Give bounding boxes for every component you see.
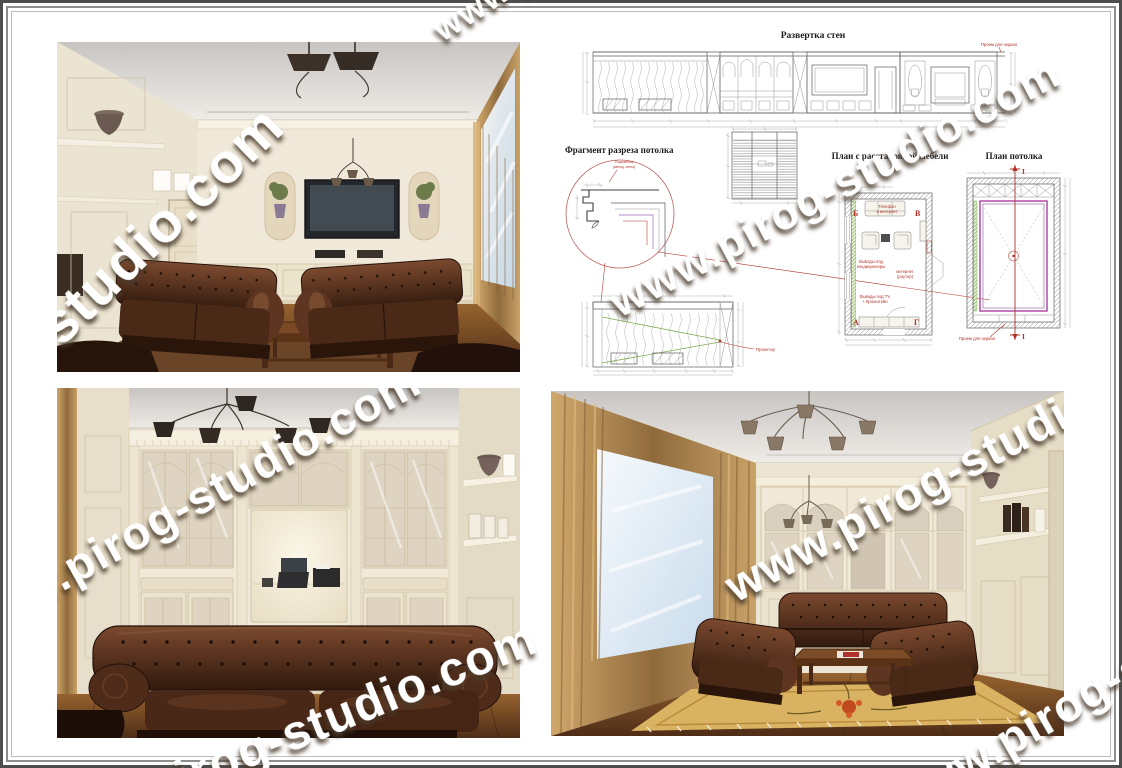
watermark: www.pirog-studio.com xyxy=(601,48,1069,328)
watermark: www.pirog-studio.com xyxy=(426,0,779,49)
telephone xyxy=(262,578,273,587)
label-phone-internet: Телефон и интернет xyxy=(876,204,897,214)
tv-symbol xyxy=(881,234,890,242)
furniture-plan: Телефон и интернет Выводы под кондиционе… xyxy=(837,185,943,345)
svg-text:и интернет: и интернет xyxy=(876,209,897,214)
svg-text:Проектор: Проектор xyxy=(756,347,775,352)
ottoman xyxy=(57,710,125,738)
magazine xyxy=(843,652,859,657)
ceiling-detail-circle: Подсветка (светод. лента) xyxy=(566,160,674,268)
label-router: интернет (роутер) xyxy=(896,269,914,279)
svg-text:кондиционеры: кондиционеры xyxy=(857,264,885,269)
door-jamb xyxy=(1049,451,1064,691)
corner-letter-v: В xyxy=(915,209,921,218)
corner-letter-b: Б xyxy=(853,209,858,218)
svg-text:+ Кронштейн: + Кронштейн xyxy=(862,299,888,304)
svg-text:Подсветка: Подсветка xyxy=(615,160,634,164)
svg-text:(роутер): (роутер) xyxy=(897,274,914,279)
label-ac-outlets: Выводы под кондиционеры xyxy=(857,259,885,269)
picture-frame xyxy=(1035,509,1045,532)
render-living-room-wide: www.pirog-studio.com xyxy=(551,320,1122,736)
sheet-canvas: www.pirog-studio.com xyxy=(0,0,1122,768)
svg-text:Проем для зеркал: Проем для зеркал xyxy=(981,42,1018,47)
printer xyxy=(313,568,340,587)
wall-section-drawing: Проектор xyxy=(582,294,775,375)
ceiling-plan: I I Проем для зеркал xyxy=(959,165,1070,341)
design-presentation-sheet: www.pirog-studio.com xyxy=(0,0,1122,768)
corner-letter-a: А xyxy=(853,318,859,327)
laptop xyxy=(277,572,309,588)
section-mark-top: I xyxy=(1022,167,1025,176)
section-mark-bottom: I xyxy=(1022,332,1025,341)
title-ceiling-plan: План потолка xyxy=(986,151,1043,161)
corner-letter-g: Г xyxy=(914,318,919,327)
label-backlight: Подсветка (светод. лента) xyxy=(609,160,635,182)
title-wall-elevations: Развертка стен xyxy=(781,31,846,41)
svg-text:(светод. лента): (светод. лента) xyxy=(613,165,635,169)
label-tv-outlets: Выводы под TV + Кронштейн xyxy=(860,294,891,304)
title-ceiling-fragment: Фрагмент разреза потолка xyxy=(565,145,674,155)
sofa-right xyxy=(291,258,467,360)
label-mirror-opening-top: Проем для зеркал xyxy=(981,42,1018,52)
